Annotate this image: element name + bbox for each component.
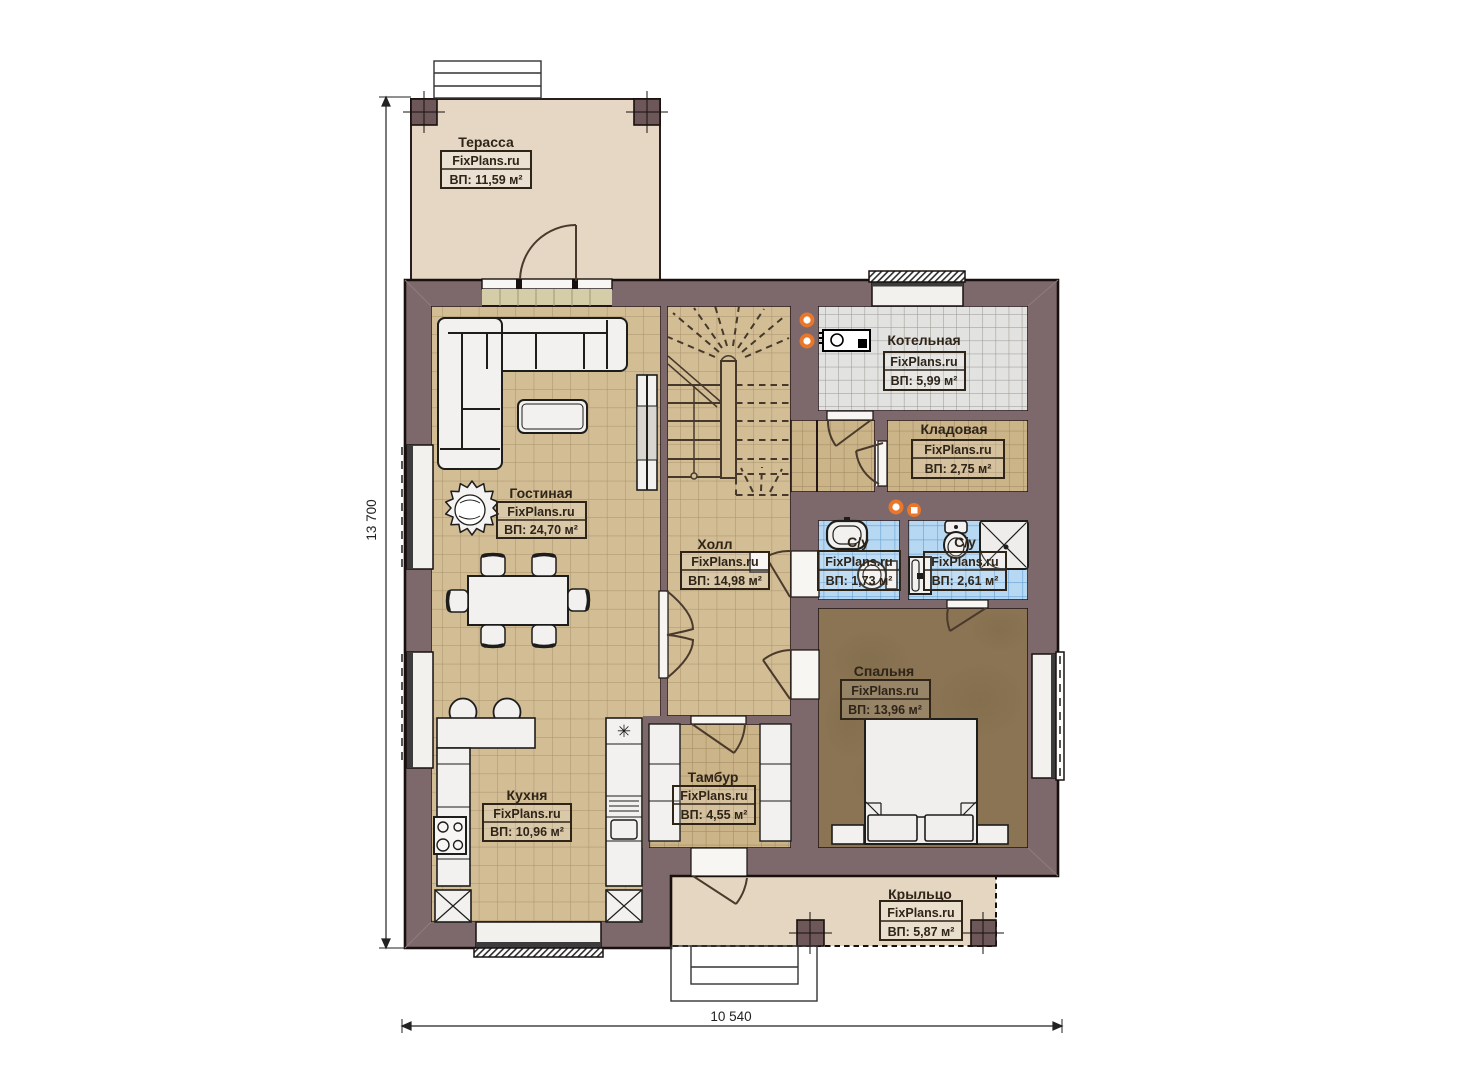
svg-text:ВП: 5,99 м²: ВП: 5,99 м²	[891, 374, 958, 388]
svg-text:Спальня: Спальня	[854, 663, 914, 679]
svg-text:Терасса: Терасса	[458, 134, 514, 150]
svg-text:ВП: 13,96 м²: ВП: 13,96 м²	[848, 703, 922, 717]
svg-text:С/у: С/у	[954, 534, 976, 550]
svg-text:FixPlans.ru: FixPlans.ru	[887, 906, 954, 920]
svg-text:Кухня: Кухня	[507, 787, 548, 803]
svg-text:ВП: 24,70 м²: ВП: 24,70 м²	[504, 523, 578, 537]
svg-text:FixPlans.ru: FixPlans.ru	[931, 555, 998, 569]
svg-text:✳: ✳	[617, 722, 631, 741]
svg-text:С/у: С/у	[847, 534, 869, 550]
svg-text:ВП: 1,73 м²: ВП: 1,73 м²	[826, 574, 893, 588]
svg-text:Гостиная: Гостиная	[509, 485, 572, 501]
svg-text:FixPlans.ru: FixPlans.ru	[851, 684, 918, 698]
svg-text:ВП: 11,59 м²: ВП: 11,59 м²	[449, 173, 522, 187]
svg-text:FixPlans.ru: FixPlans.ru	[691, 555, 758, 569]
svg-text:ВП: 2,61 м²: ВП: 2,61 м²	[932, 574, 999, 588]
svg-text:Холл: Холл	[697, 536, 732, 552]
svg-text:FixPlans.ru: FixPlans.ru	[452, 154, 519, 168]
svg-text:FixPlans.ru: FixPlans.ru	[924, 443, 991, 457]
svg-text:FixPlans.ru: FixPlans.ru	[890, 355, 957, 369]
svg-text:10 540: 10 540	[710, 1009, 751, 1024]
svg-text:ВП: 14,98 м²: ВП: 14,98 м²	[688, 574, 762, 588]
svg-text:13 700: 13 700	[364, 499, 379, 540]
svg-text:Котельная: Котельная	[887, 332, 960, 348]
svg-text:Тамбур: Тамбур	[688, 769, 739, 785]
svg-text:FixPlans.ru: FixPlans.ru	[507, 505, 574, 519]
svg-text:FixPlans.ru: FixPlans.ru	[825, 555, 892, 569]
svg-text:ВП: 10,96 м²: ВП: 10,96 м²	[490, 825, 564, 839]
svg-text:ВП: 5,87 м²: ВП: 5,87 м²	[888, 925, 955, 939]
svg-text:Кладовая: Кладовая	[920, 421, 987, 437]
svg-text:Крыльцо: Крыльцо	[888, 886, 952, 902]
svg-text:FixPlans.ru: FixPlans.ru	[493, 807, 560, 821]
svg-text:ВП: 2,75 м²: ВП: 2,75 м²	[925, 462, 992, 476]
svg-text:ВП: 4,55 м²: ВП: 4,55 м²	[681, 808, 748, 822]
svg-text:FixPlans.ru: FixPlans.ru	[680, 789, 747, 803]
